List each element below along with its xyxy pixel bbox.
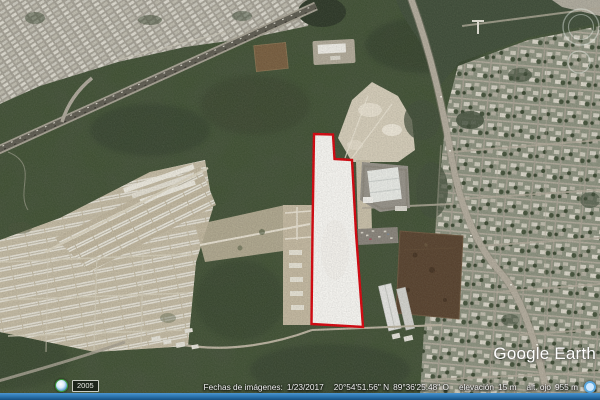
elevation-label: elevación <box>459 383 494 392</box>
streaming-indicator-icon <box>584 381 596 393</box>
clock-icon <box>55 379 68 392</box>
imagery-date-label: Fechas de imágenes: <box>204 383 283 392</box>
elevation-value: 15 m <box>498 383 516 392</box>
imagery-year: 2005 <box>72 380 99 392</box>
eye-altitude-label: alt. ojo <box>526 383 550 392</box>
google-earth-window: Google Earth 2005 Fechas de imágenes: 1/… <box>0 0 600 400</box>
satellite-map[interactable] <box>0 0 600 400</box>
status-bar: Fechas de imágenes: 1/23/2017 20°54'51.5… <box>204 381 598 393</box>
latitude: 20°54'51.56" N <box>334 383 389 392</box>
eye-altitude-value: 955 m <box>555 383 578 392</box>
longitude: 89°36'25.48" O <box>393 383 449 392</box>
bottom-blue-bar <box>0 393 600 400</box>
google-earth-watermark: Google Earth <box>493 344 596 364</box>
imagery-date: 1/23/2017 <box>287 383 324 392</box>
historical-imagery-badge[interactable]: 2005 <box>55 379 99 392</box>
